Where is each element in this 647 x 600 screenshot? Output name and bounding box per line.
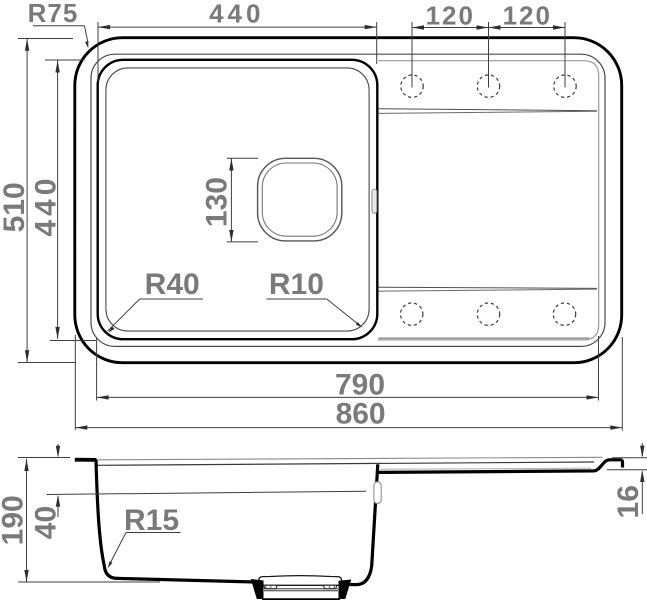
svg-text:510: 510 (0, 182, 31, 232)
svg-text:120: 120 (426, 0, 475, 30)
svg-text:16: 16 (612, 485, 645, 518)
svg-text:440: 440 (29, 175, 62, 237)
svg-text:190: 190 (0, 495, 29, 545)
svg-text:R10: R10 (269, 268, 324, 301)
svg-text:130: 130 (201, 177, 234, 227)
svg-text:860: 860 (336, 398, 386, 431)
svg-text:R75: R75 (28, 0, 79, 28)
svg-text:40: 40 (30, 506, 63, 539)
svg-text:120: 120 (503, 0, 552, 30)
svg-text:R40: R40 (145, 268, 200, 301)
svg-text:440: 440 (209, 0, 264, 29)
